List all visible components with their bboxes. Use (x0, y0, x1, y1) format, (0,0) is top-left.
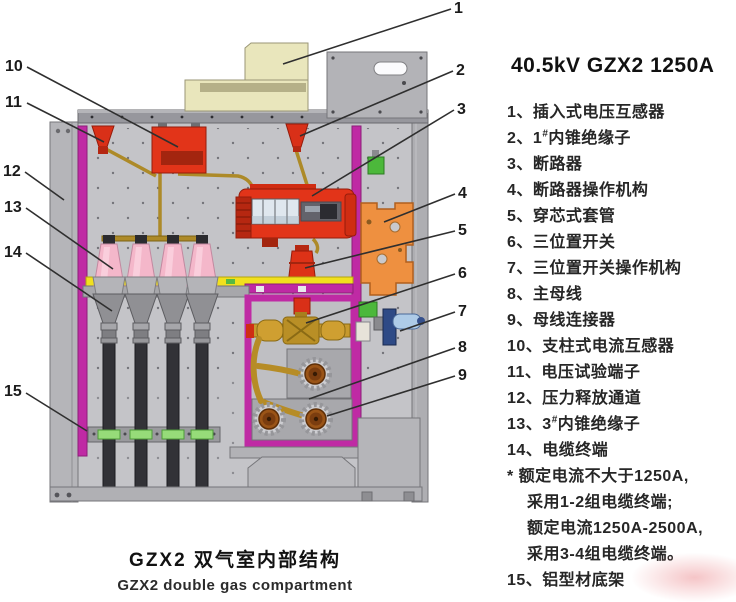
callout-4: 4 (458, 185, 467, 203)
legend-items: 1、插入式电压互感器2、1#内锥绝缘子3、断路器4、断路器操作机构5、穿芯式套管… (507, 98, 736, 592)
callout-6: 6 (458, 265, 467, 283)
callout-5: 5 (458, 222, 467, 240)
diagram-caption: GZX2 双气室内部结构 GZX2 double gas compartment (55, 545, 415, 594)
current-transformer-block (152, 123, 206, 173)
caption-chinese: GZX2 双气室内部结构 (55, 545, 415, 572)
legend-item-5: 5、穿芯式套管 (507, 202, 736, 228)
left-door-panel (50, 122, 78, 502)
callout-2: 2 (456, 62, 465, 80)
top-right-cover-panel (327, 52, 427, 118)
page: 123456789101112131415 40.5kV GZX2 1250A … (0, 0, 736, 602)
legend-item-1: 1、插入式电压互感器 (507, 98, 736, 124)
legend-item-16: 采用1-2组电缆终端; (507, 488, 736, 514)
legend-item-13: 13、3#内锥绝缘子 (507, 410, 736, 436)
callout-13: 13 (4, 199, 22, 217)
diagram: 123456789101112131415 (0, 0, 480, 602)
legend-item-17: 额定电流1250A-2500A, (507, 514, 736, 540)
legend-item-14: 14、电缆终端 (507, 436, 736, 462)
legend-item-10: 10、支柱式电流互感器 (507, 332, 736, 358)
callout-14: 14 (4, 244, 22, 262)
legend-item-15: * 额定电流不大于1250A, (507, 462, 736, 488)
base-frame (50, 487, 422, 501)
callout-1: 1 (454, 0, 463, 18)
legend-title: 40.5kV GZX2 1250A (511, 54, 714, 78)
callout-10: 10 (5, 58, 23, 76)
switchgear-diagram (0, 0, 480, 602)
caption-english: GZX2 double gas compartment (55, 577, 415, 594)
callout-12: 12 (3, 163, 21, 181)
callout-9: 9 (458, 367, 467, 385)
cone-bus-bar (102, 236, 205, 241)
legend-item-2: 2、1#内锥绝缘子 (507, 124, 736, 150)
legend-item-6: 6、三位置开关 (507, 228, 736, 254)
callout-3: 3 (457, 101, 466, 119)
magenta-divider (245, 284, 353, 293)
legend-item-4: 4、断路器操作机构 (507, 176, 736, 202)
legend-item-7: 7、三位置开关操作机构 (507, 254, 736, 280)
legend-panel: 40.5kV GZX2 1250A 1、插入式电压互感器2、1#内锥绝缘子3、断… (490, 0, 736, 602)
circuit-breaker (236, 184, 356, 247)
callout-11: 11 (5, 94, 22, 112)
callout-7: 7 (458, 303, 467, 321)
legend-item-8: 8、主母线 (507, 280, 736, 306)
legend-item-9: 9、母线连接器 (507, 306, 736, 332)
breaker-mechanism-plate (361, 203, 413, 295)
legend-item-3: 3、断路器 (507, 150, 736, 176)
callout-8: 8 (458, 339, 467, 357)
legend-item-11: 11、电压试验端子 (507, 358, 736, 384)
callout-15: 15 (4, 383, 22, 401)
legend-item-12: 12、压力释放通道 (507, 384, 736, 410)
watermark-stamp (632, 553, 736, 602)
voltage-transformer-box (185, 43, 308, 111)
